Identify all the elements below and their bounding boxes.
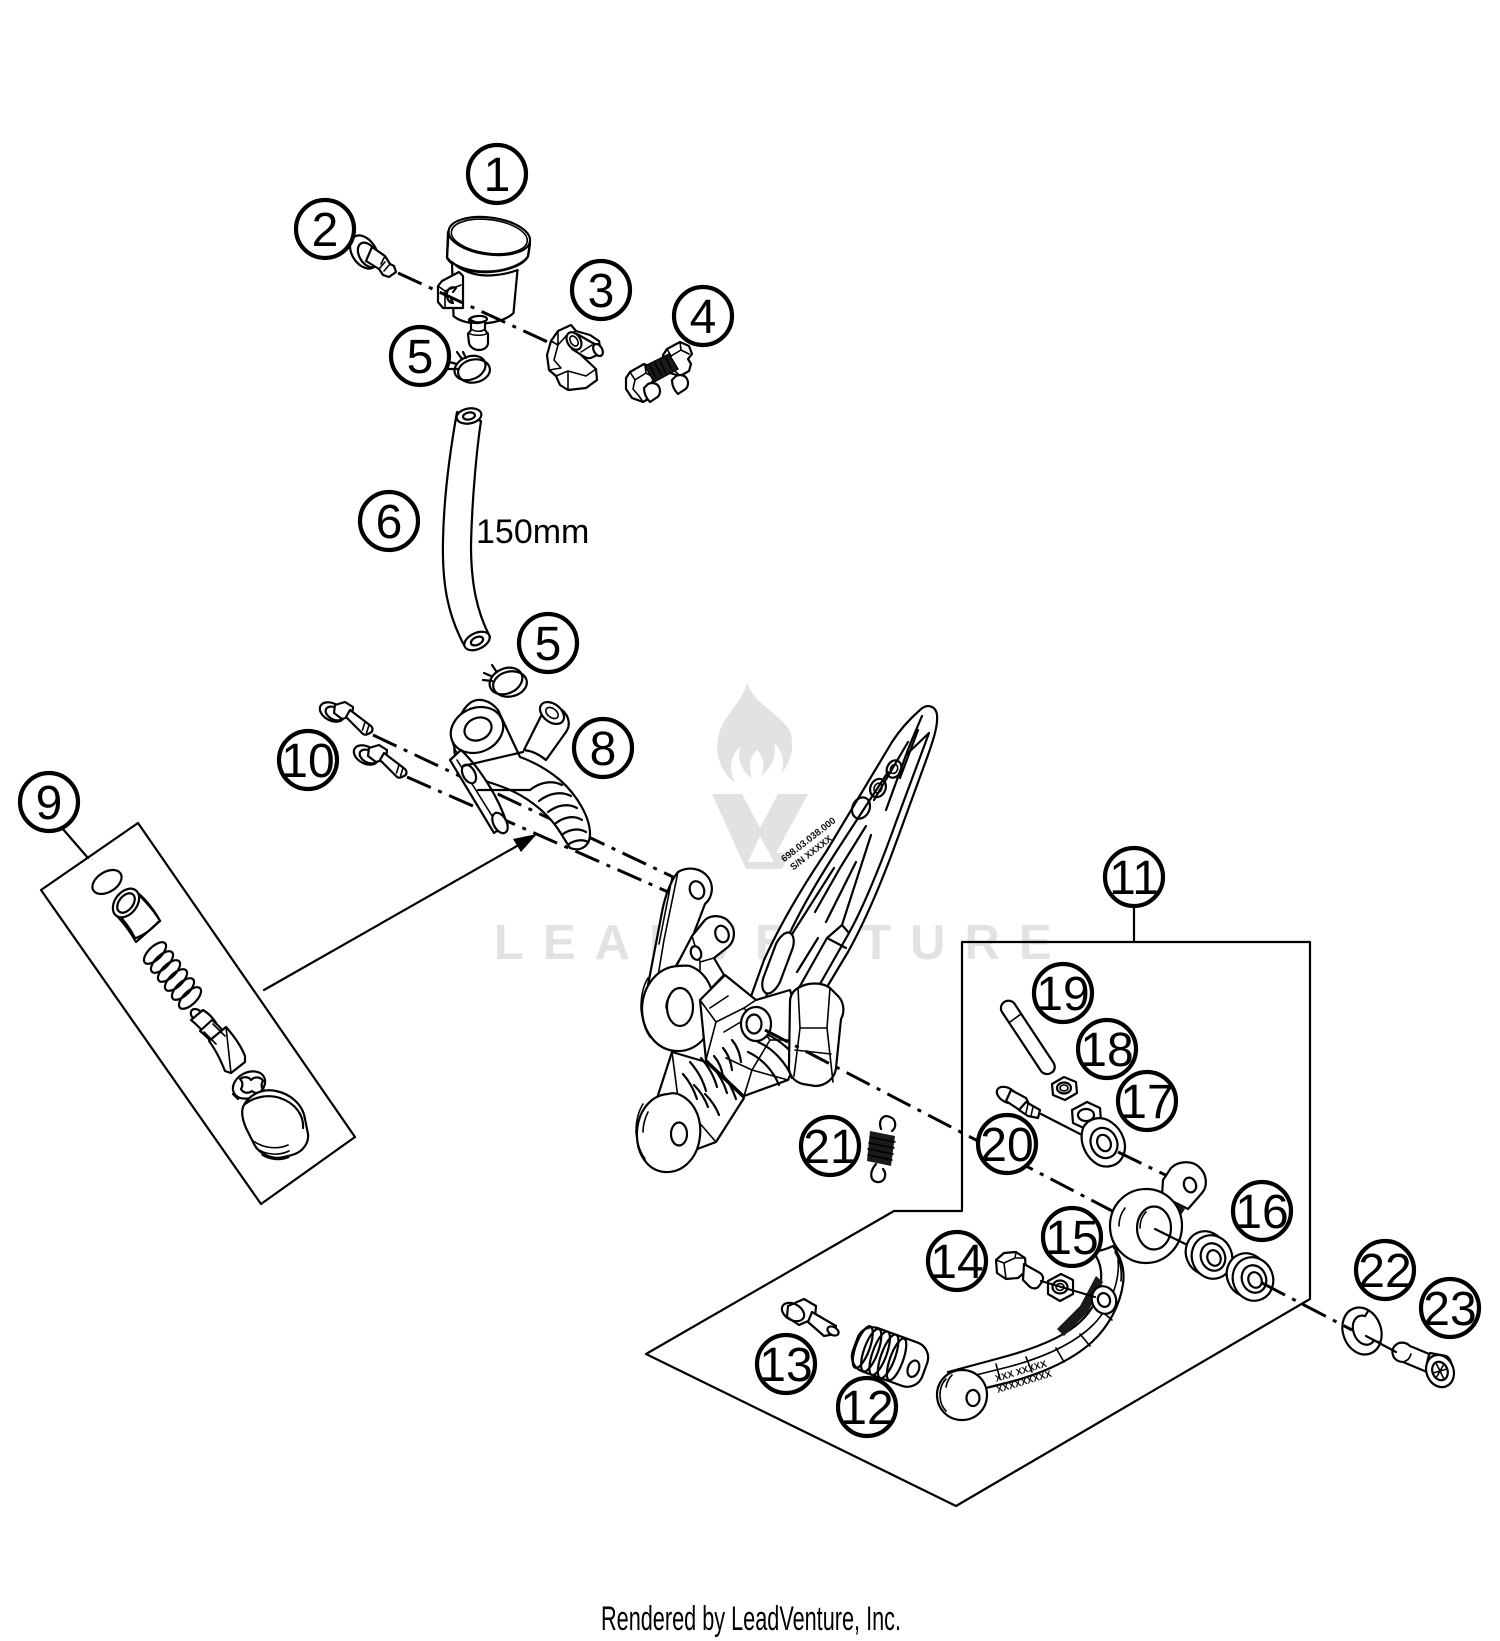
svg-text:20: 20 (980, 1119, 1033, 1172)
svg-text:4: 4 (690, 291, 717, 344)
svg-text:19: 19 (1036, 968, 1089, 1021)
svg-text:22: 22 (1358, 1245, 1411, 1298)
svg-text:14: 14 (930, 1236, 983, 1289)
svg-text:15: 15 (1045, 1212, 1098, 1265)
svg-text:5: 5 (535, 618, 562, 671)
svg-text:150mm: 150mm (476, 513, 589, 551)
svg-text:9: 9 (36, 777, 63, 830)
svg-text:Rendered by LeadVenture, Inc.: Rendered by LeadVenture, Inc. (601, 1600, 901, 1638)
svg-text:3: 3 (588, 265, 615, 318)
svg-text:1: 1 (484, 149, 511, 202)
svg-text:13: 13 (759, 1339, 812, 1392)
svg-text:23: 23 (1423, 1283, 1476, 1336)
svg-text:16: 16 (1235, 1186, 1288, 1239)
svg-text:21: 21 (803, 1121, 856, 1174)
svg-text:2: 2 (312, 204, 339, 257)
svg-text:11: 11 (1109, 852, 1159, 905)
svg-text:12: 12 (840, 1382, 893, 1435)
svg-text:6: 6 (376, 496, 403, 549)
svg-text:8: 8 (590, 723, 617, 776)
svg-text:17: 17 (1120, 1076, 1173, 1129)
svg-text:18: 18 (1080, 1024, 1133, 1077)
svg-text:10: 10 (281, 735, 334, 788)
svg-text:5: 5 (407, 331, 434, 384)
